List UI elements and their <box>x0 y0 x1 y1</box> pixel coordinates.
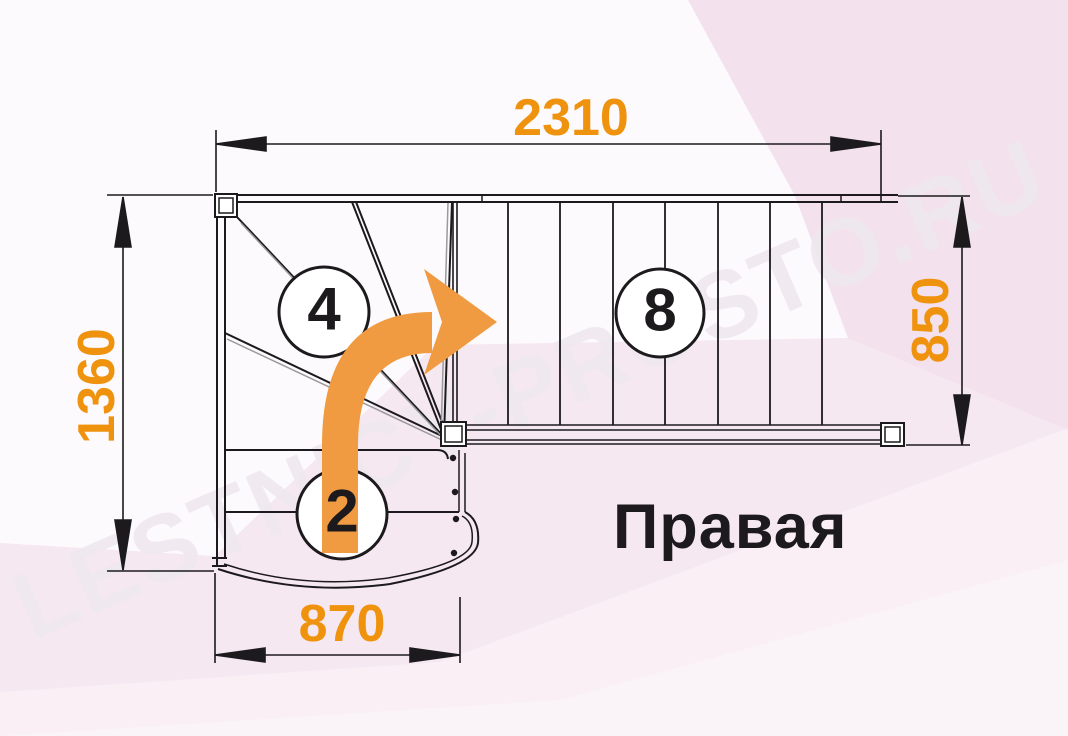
stringer-joint-ticks <box>482 195 841 202</box>
straight-flight-step-count: 8 <box>643 281 676 341</box>
dim-arrow-850-top <box>954 197 970 247</box>
staircase-plan-canvas: LESTNICY-PROSTO.RU <box>0 0 1068 736</box>
lower-flight-step-count: 2 <box>325 482 358 542</box>
bottom-rail-band <box>467 425 881 444</box>
left-stringer-edge <box>212 217 227 566</box>
dim-arrow-850-bottom <box>954 395 970 445</box>
fastener-dots <box>450 455 459 556</box>
dim-text-870: 870 <box>299 598 386 650</box>
dim-arrow-870-left <box>215 648 265 662</box>
dim-text-2310: 2310 <box>513 92 629 144</box>
top-stringer-edge <box>216 195 898 202</box>
dim-text-850: 850 <box>905 277 957 364</box>
turn-arrow-head <box>424 269 497 375</box>
dim-arrow-1360-top <box>115 197 131 247</box>
newel-post-center-inner <box>445 426 462 442</box>
dim-arrow-870-right <box>410 648 460 662</box>
dim-arrow-1360-bottom <box>115 520 131 570</box>
dim-text-1360: 1360 <box>71 328 123 444</box>
direction-label: Правая <box>613 496 848 559</box>
newel-post-right-inner <box>885 427 900 442</box>
dim-arrow-2310-left <box>216 137 266 151</box>
dim-arrow-2310-right <box>831 137 881 151</box>
newel-post-top-left-inner <box>219 198 233 213</box>
lower-flight-right-edge <box>459 450 465 512</box>
winder-step-count: 4 <box>307 280 340 340</box>
